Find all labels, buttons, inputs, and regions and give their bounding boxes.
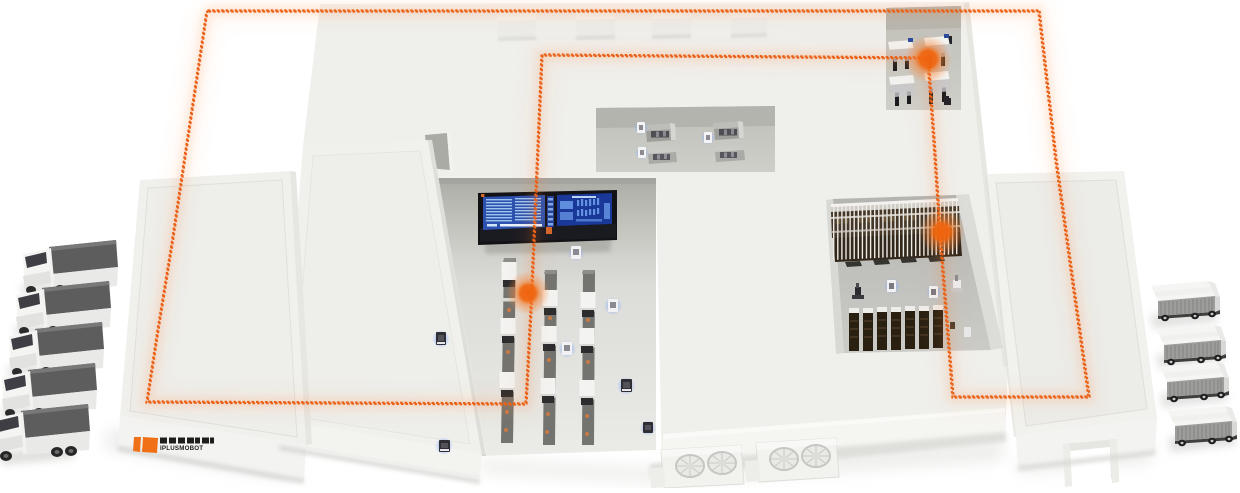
svg-text:IPLUSMOBOT: IPLUSMOBOT — [160, 445, 203, 452]
